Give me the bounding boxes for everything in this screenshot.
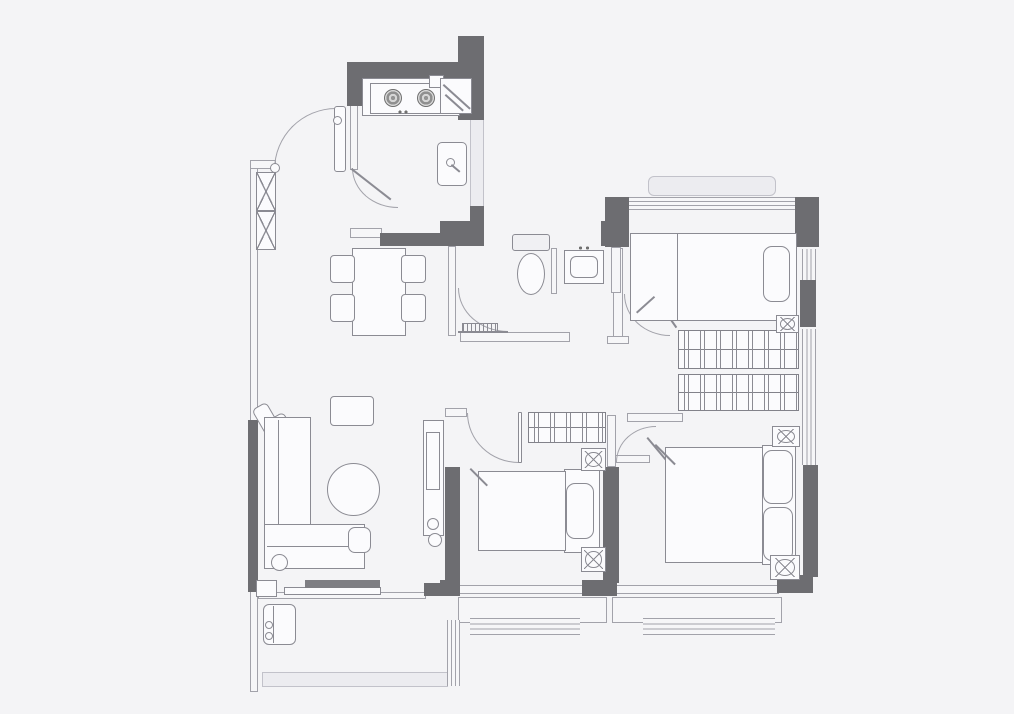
bedroom2-bottom-wall xyxy=(458,585,584,594)
kitchen-topleft-stub xyxy=(347,62,363,106)
washing-machine-door-line xyxy=(273,606,274,643)
master-nightstand-lamp-bottom xyxy=(770,555,800,580)
stove-knobs xyxy=(396,109,410,115)
bedroom1-lamp xyxy=(776,315,799,333)
bedroom2-door-arc xyxy=(467,413,519,463)
master-right-window xyxy=(802,329,816,465)
bath-basin xyxy=(570,256,598,278)
dining-chair-ne xyxy=(401,255,426,283)
bedroom1-pillow xyxy=(763,246,790,302)
bedroom1-right-window xyxy=(802,249,816,280)
master-door-arc xyxy=(616,426,656,462)
shower-drain xyxy=(462,323,498,333)
side-table xyxy=(348,527,371,553)
bedroom1-topleft-wall xyxy=(605,197,629,247)
stove-burner-right xyxy=(417,89,435,107)
bedroom1-wardrobe-a xyxy=(678,330,799,369)
kitchen-right-ledge xyxy=(470,118,484,208)
desk-item-small xyxy=(427,518,439,530)
hallway-wall-bar-thick xyxy=(440,221,484,246)
tv-board xyxy=(284,587,381,595)
desk-monitor xyxy=(426,432,440,490)
sofa-round-cushion xyxy=(271,554,288,571)
dining-chair-sw xyxy=(330,294,355,322)
washing-machine-knob-b xyxy=(265,632,273,640)
dining-chair-se xyxy=(401,294,426,322)
right-wall-upper xyxy=(800,280,816,327)
stove-burner-left xyxy=(384,89,402,107)
bath-partition-wall xyxy=(551,248,557,294)
bedroom2-lamp-top xyxy=(581,448,606,471)
bedroom1-wardrobe-b xyxy=(678,374,799,411)
entry-door-knob xyxy=(333,116,342,125)
floor-plan xyxy=(0,0,1014,714)
right-wall-lower xyxy=(803,465,818,577)
living-rug xyxy=(330,396,374,426)
shoe-cabinet-lower xyxy=(256,211,276,250)
bedroom2-left-wall xyxy=(445,467,460,593)
shoe-cabinet-knob xyxy=(270,163,280,173)
bedroom1-bed-line xyxy=(677,234,678,320)
toilet-tank xyxy=(512,234,550,251)
bedroom2-bottom-window xyxy=(470,618,580,635)
balcony-door-stub xyxy=(424,583,450,596)
master-pillow-top xyxy=(763,450,793,504)
bedroom1-top-window xyxy=(629,197,795,210)
corridor-wall-foot xyxy=(607,336,629,344)
master-pillow-bottom xyxy=(763,507,793,561)
sofa-body xyxy=(264,417,311,529)
bedroom1-topright-wall xyxy=(795,197,819,247)
bedroom2-bed xyxy=(478,471,566,551)
sofa-seat-line xyxy=(278,420,279,527)
dining-table xyxy=(352,248,406,336)
bedroom1-left-lower-wall xyxy=(611,247,621,293)
bath-faucet-marks xyxy=(576,245,592,251)
bedroom2-wardrobe xyxy=(528,412,606,443)
master-bed xyxy=(665,447,763,563)
bedroom1-bottom-wall xyxy=(627,413,683,422)
kitchen-bottom-stub xyxy=(350,228,382,238)
washing-machine-knob-a xyxy=(265,621,273,629)
bedroom2-top-wall-stub xyxy=(445,408,467,417)
tv-unit xyxy=(305,580,380,588)
coffee-table xyxy=(327,463,380,516)
bedroom2-pillow xyxy=(566,483,594,539)
master-bottom-window xyxy=(643,618,775,635)
bath-left-wall xyxy=(448,246,456,336)
bedroom2-lamp-bottom xyxy=(581,547,606,572)
entry-door-arc xyxy=(274,108,336,170)
balcony-right-window xyxy=(447,620,460,686)
dining-chair-nw xyxy=(330,255,355,283)
toilet-bowl xyxy=(517,253,545,295)
bedroom2-door-leaf xyxy=(518,412,522,463)
kitchen-left-wall xyxy=(350,104,358,170)
balcony-bottom-band xyxy=(262,672,448,687)
bay-window-ledge xyxy=(648,176,776,196)
bath-bottom-wall xyxy=(460,332,570,342)
shoe-cabinet-upper xyxy=(256,172,276,211)
desk-item-large xyxy=(428,533,442,547)
master-nightstand-lamp-top xyxy=(772,426,800,447)
wall-end-box xyxy=(256,580,277,597)
master-bottom-wall xyxy=(615,585,779,594)
left-wall-segment xyxy=(248,420,258,592)
